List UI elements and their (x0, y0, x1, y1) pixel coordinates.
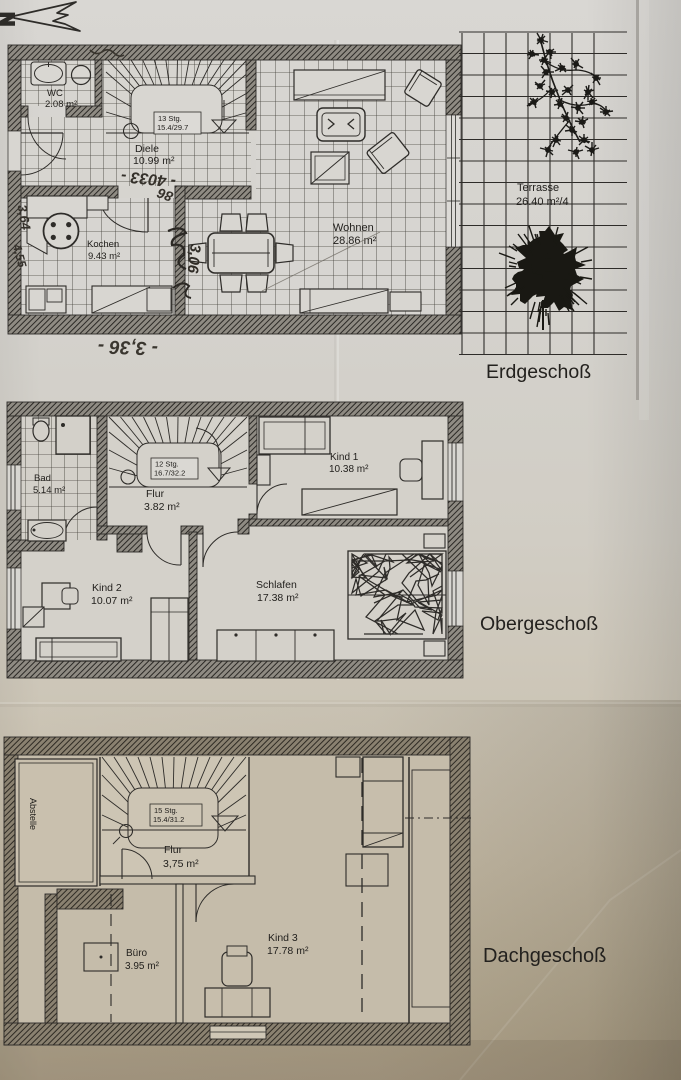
svg-text:Kind 1: Kind 1 (330, 452, 359, 463)
svg-text:15.4/29.7: 15.4/29.7 (157, 123, 188, 132)
svg-text:Flur: Flur (146, 488, 165, 500)
svg-text:15.4/31.2: 15.4/31.2 (153, 815, 184, 824)
svg-text:Bad: Bad (34, 473, 51, 484)
svg-text:Terrasse: Terrasse (517, 182, 559, 194)
svg-text:2.08 m²: 2.08 m² (45, 99, 77, 110)
svg-text:10.38 m²: 10.38 m² (329, 464, 369, 475)
svg-text:N: N (0, 12, 19, 26)
svg-text:Wohnen: Wohnen (333, 222, 374, 234)
svg-text:Abstelle: Abstelle (28, 798, 38, 830)
svg-text:17.78 m²: 17.78 m² (267, 945, 309, 957)
svg-text:9.43 m²: 9.43 m² (88, 251, 120, 262)
svg-text:15 Stg.: 15 Stg. (154, 806, 178, 815)
svg-text:Büro: Büro (126, 948, 148, 959)
svg-text:10.99 m²: 10.99 m² (133, 155, 175, 167)
svg-text:Erdgeschoß: Erdgeschoß (486, 361, 591, 383)
svg-text:WC: WC (47, 88, 63, 99)
svg-text:Kochen: Kochen (87, 239, 119, 250)
svg-text:Dachgeschoß: Dachgeschoß (483, 945, 606, 967)
svg-text:3.95 m²: 3.95 m² (125, 961, 160, 972)
svg-text:- 3,36 -: - 3,36 - (97, 335, 158, 358)
svg-text:3.82 m²: 3.82 m² (144, 501, 180, 513)
svg-text:12 Stg.: 12 Stg. (155, 460, 179, 469)
svg-text:5.14 m²: 5.14 m² (33, 485, 65, 496)
svg-text:26.40 m²/4: 26.40 m²/4 (516, 196, 569, 208)
svg-text:17.38 m²: 17.38 m² (257, 592, 299, 604)
svg-text:Kind 2: Kind 2 (92, 582, 122, 594)
svg-text:Schlafen: Schlafen (256, 579, 297, 591)
svg-text:13 Stg.: 13 Stg. (158, 114, 182, 123)
svg-text:3,75 m²: 3,75 m² (163, 858, 199, 870)
svg-text:16.7/32.2: 16.7/32.2 (154, 469, 185, 478)
svg-text:Kind 3: Kind 3 (268, 932, 298, 944)
svg-text:Obergeschoß: Obergeschoß (480, 613, 598, 635)
svg-text:3,06: 3,06 (184, 243, 204, 274)
svg-text:10.07 m²: 10.07 m² (91, 595, 133, 607)
svg-text:Diele: Diele (135, 143, 159, 155)
svg-text:Flur: Flur (164, 844, 183, 856)
